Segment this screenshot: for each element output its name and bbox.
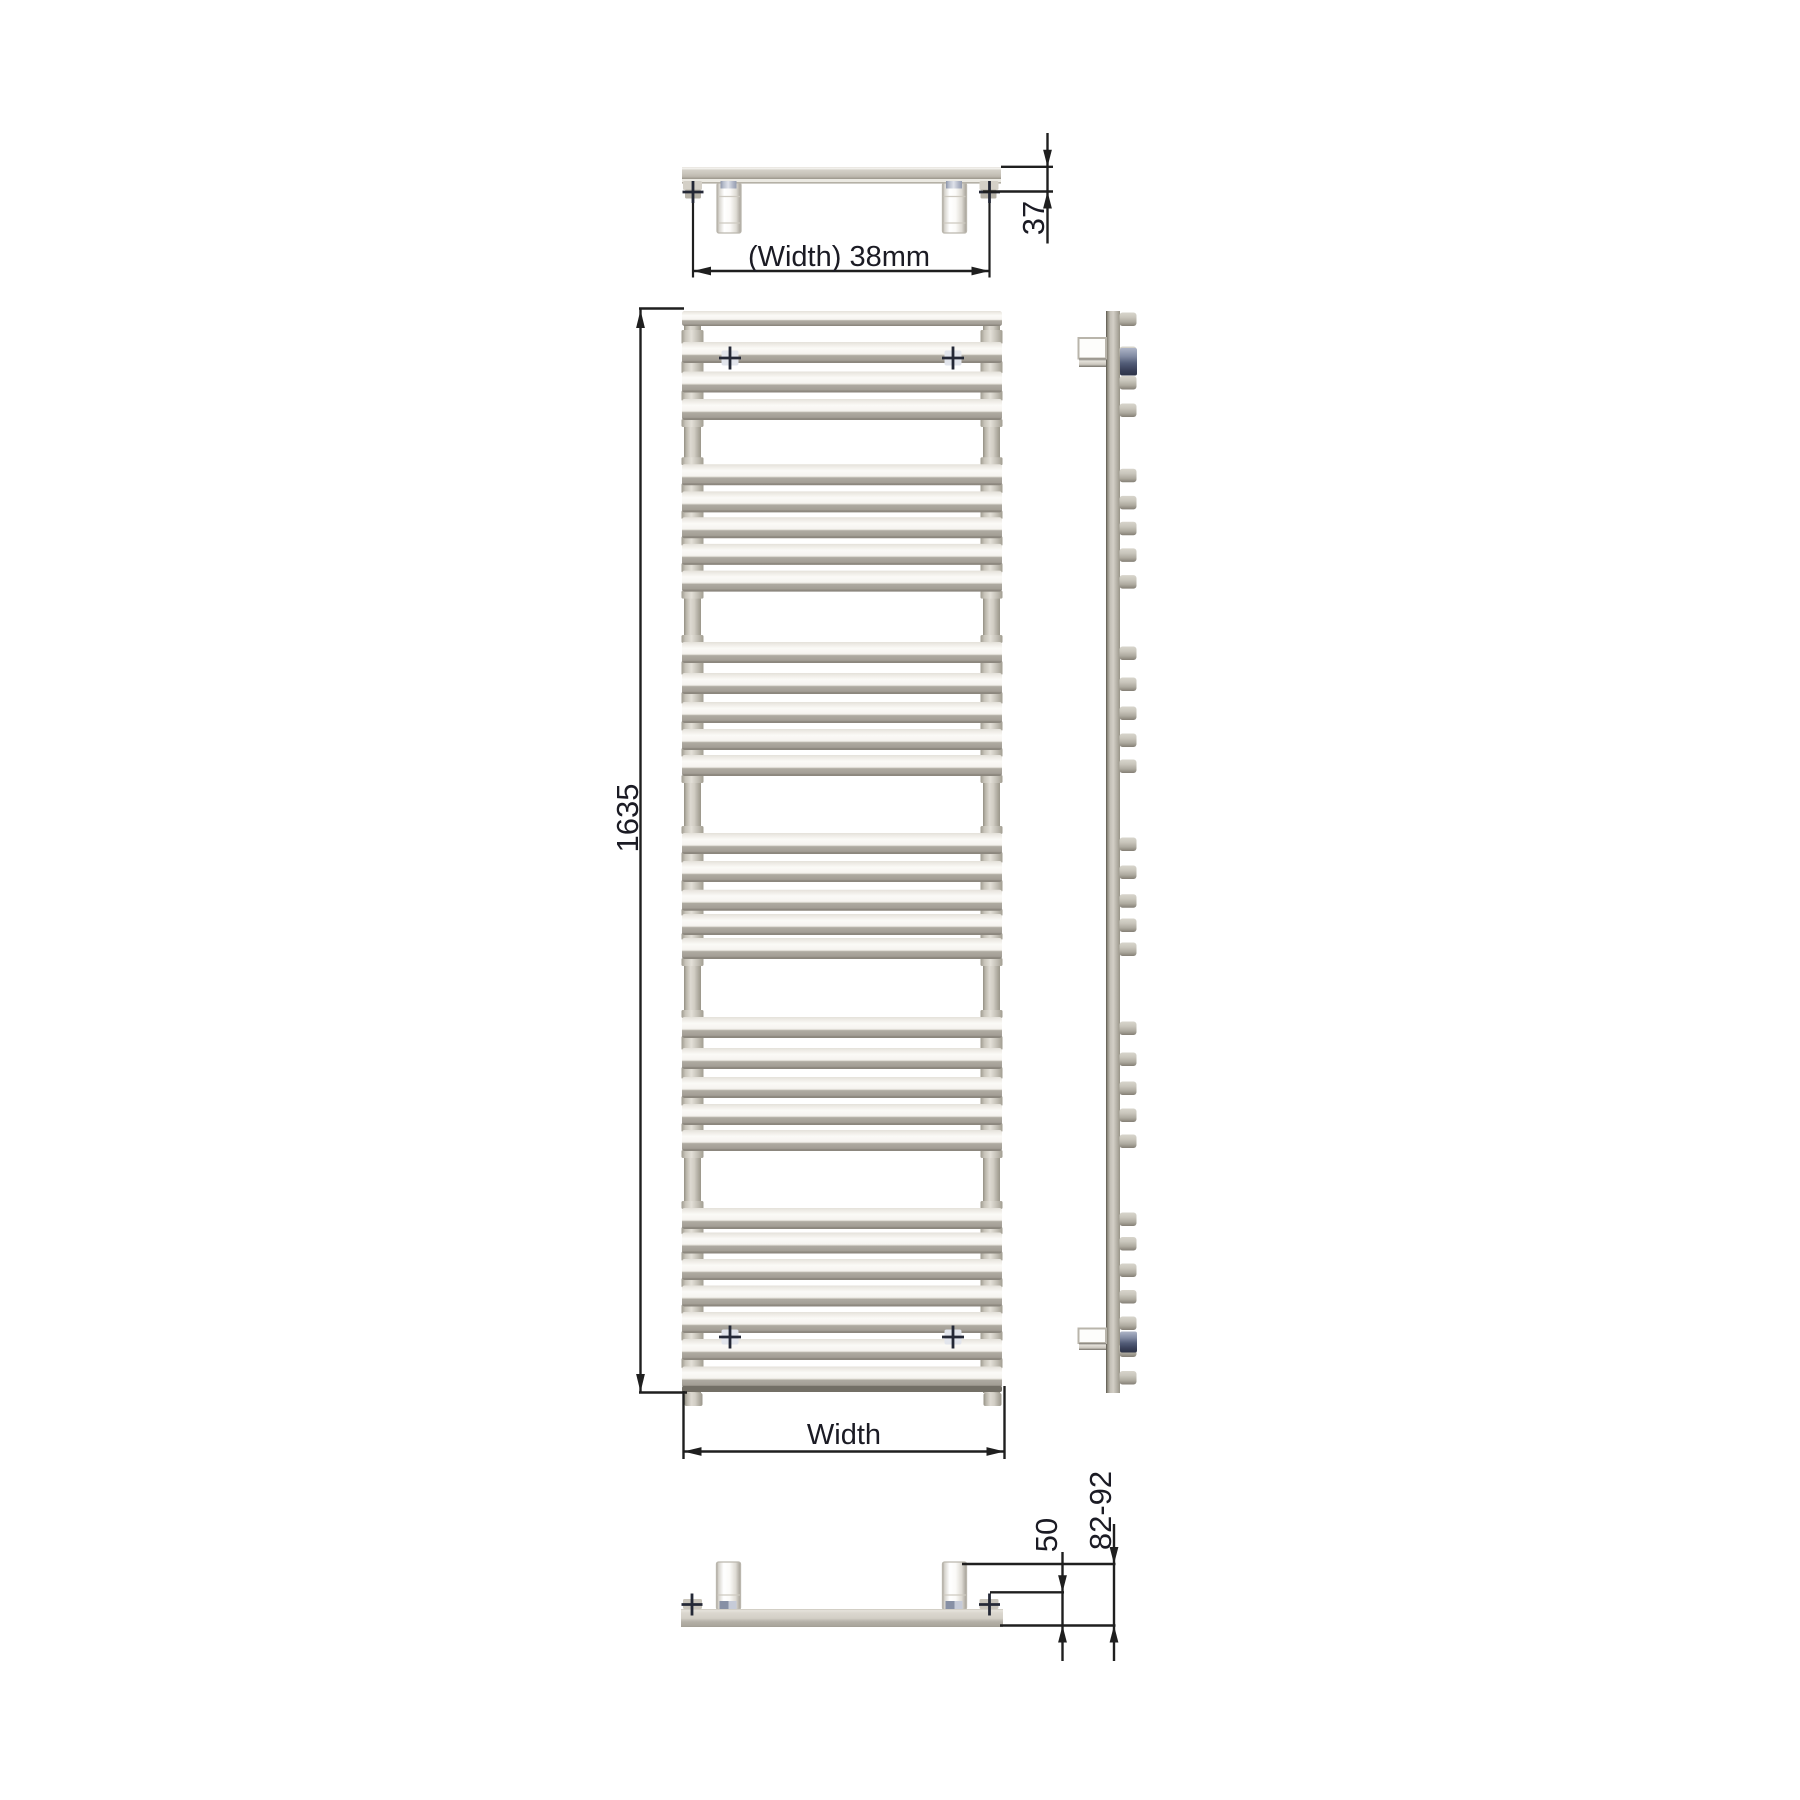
svg-text:(Width) 38mm: (Width) 38mm	[748, 241, 930, 273]
svg-text:82-92: 82-92	[1083, 1471, 1118, 1550]
svg-text:37: 37	[1016, 201, 1051, 235]
svg-text:1635: 1635	[610, 784, 645, 853]
svg-text:Width: Width	[807, 1419, 881, 1451]
svg-text:50: 50	[1029, 1518, 1064, 1552]
